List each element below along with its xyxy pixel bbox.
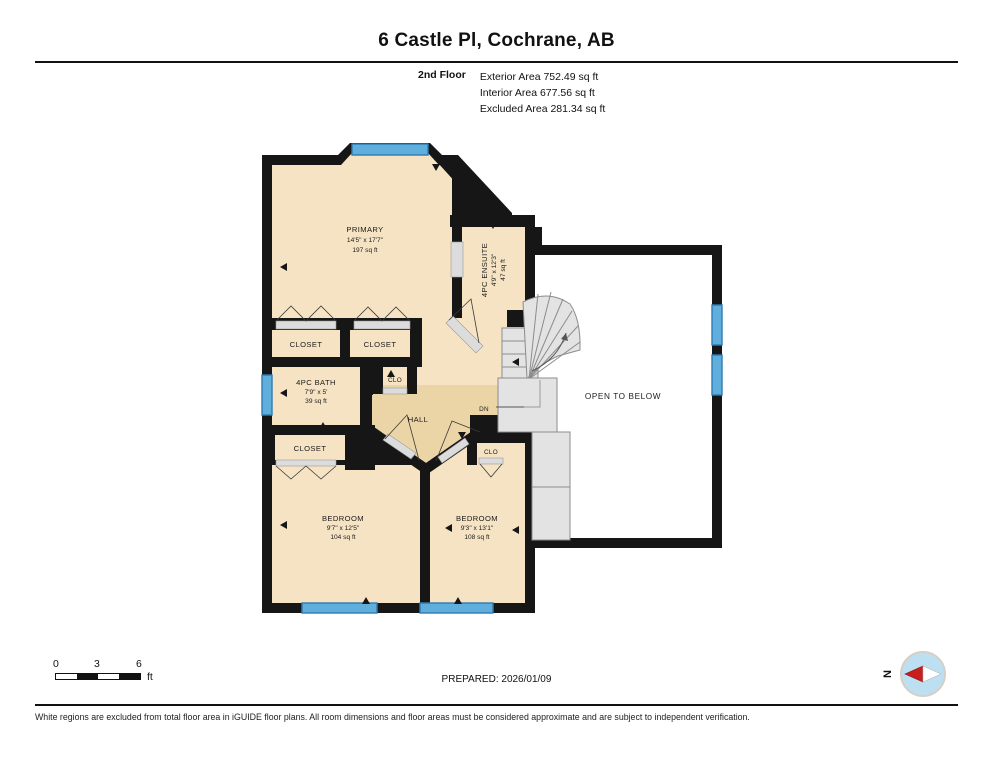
bedroom1-dims: 9'7" x 12'5" — [327, 525, 360, 532]
wall-bedroom-divider — [420, 466, 430, 613]
floor-plan-svg: PRIMARY 14'5" x 17'7" 197 sq ft 4PC ENSU… — [240, 130, 740, 630]
clo-bed2-label: CLO — [484, 449, 498, 456]
prepared-date: PREPARED: 2026/01/09 — [0, 674, 993, 685]
floor-label: 2nd Floor — [418, 69, 466, 117]
window-openbelow-2 — [712, 355, 722, 395]
closet2-label: CLOSET — [364, 340, 397, 349]
compass-circle — [900, 651, 946, 697]
scale-tick-3: 3 — [94, 658, 100, 670]
scale-tick-6: 6 — [136, 658, 142, 670]
bedroom2-area: 108 sq ft — [464, 534, 489, 541]
bedroom2-label: BEDROOM — [456, 514, 498, 523]
area-summary: Exterior Area 752.49 sq ft Interior Area… — [480, 69, 606, 117]
stairs-down-label: DN — [479, 406, 489, 413]
hall-label: HALL — [408, 415, 429, 424]
bath-area: 39 sq ft — [305, 398, 327, 405]
bath-label: 4PC BATH — [296, 378, 336, 387]
primary-area: 197 sq ft — [352, 247, 377, 254]
window-openbelow-1 — [712, 305, 722, 345]
bedroom1-area: 104 sq ft — [330, 534, 355, 541]
room-bath — [272, 367, 360, 425]
door-clo-hall — [383, 388, 407, 394]
window-bedroom1 — [302, 603, 377, 613]
stair-landing — [498, 378, 557, 432]
window-bath-left — [262, 375, 272, 415]
open-below-wall-right — [712, 245, 722, 548]
closet3-label: CLOSET — [294, 444, 327, 453]
interior-area: Interior Area 677.56 sq ft — [480, 85, 606, 101]
page-title: 6 Castle Pl, Cochrane, AB — [0, 30, 993, 52]
wall-clo2-left — [467, 443, 477, 465]
open-below-wall-top — [530, 245, 722, 255]
floor-info: 2nd Floor Exterior Area 752.49 sq ft Int… — [418, 69, 605, 117]
door-clo-bed2 — [479, 458, 503, 464]
clo-hall-label: CLO — [388, 377, 402, 384]
ensuite-dims: 4'9" x 12'3" — [491, 253, 498, 286]
ensuite-label: 4PC ENSUITE — [480, 243, 489, 297]
stair-run-lower — [532, 432, 570, 540]
threshold-closet1 — [276, 321, 336, 329]
floor-plan: PRIMARY 14'5" x 17'7" 197 sq ft 4PC ENSU… — [240, 130, 740, 630]
threshold-closet2 — [354, 321, 410, 329]
scale-ticks: 0 3 6 — [55, 658, 195, 671]
window-primary-top — [352, 144, 428, 155]
primary-dims: 14'5" x 17'7" — [347, 237, 384, 244]
compass-north-label: N — [882, 670, 894, 678]
wall-clo-right — [407, 367, 417, 394]
primary-label: PRIMARY — [346, 225, 383, 234]
bedroom1-label: BEDROOM — [322, 514, 364, 523]
wall-closet-bottom — [262, 357, 422, 367]
compass-needle — [902, 653, 944, 695]
exterior-area: Exterior Area 752.49 sq ft — [480, 69, 606, 85]
wall-clo-left — [373, 367, 383, 394]
ensuite-area: 47 sq ft — [500, 259, 507, 281]
threshold-closet3 — [276, 460, 336, 466]
bedroom2-dims: 9'3" x 13'1" — [461, 525, 494, 532]
header-divider — [35, 61, 958, 63]
disclaimer-text: White regions are excluded from total fl… — [35, 712, 958, 722]
excluded-area: Excluded Area 281.34 sq ft — [480, 101, 606, 117]
scale-tick-0: 0 — [53, 658, 59, 670]
compass: N — [878, 648, 958, 706]
door-ensuite — [451, 242, 463, 277]
room-primary — [272, 153, 452, 318]
footer-divider — [35, 704, 958, 706]
window-bedroom2 — [420, 603, 493, 613]
bath-dims: 7'9" x 5' — [305, 389, 328, 396]
wall-bath-right — [360, 367, 373, 395]
closet1-label: CLOSET — [290, 340, 323, 349]
open-below-label: OPEN TO BELOW — [585, 392, 661, 401]
